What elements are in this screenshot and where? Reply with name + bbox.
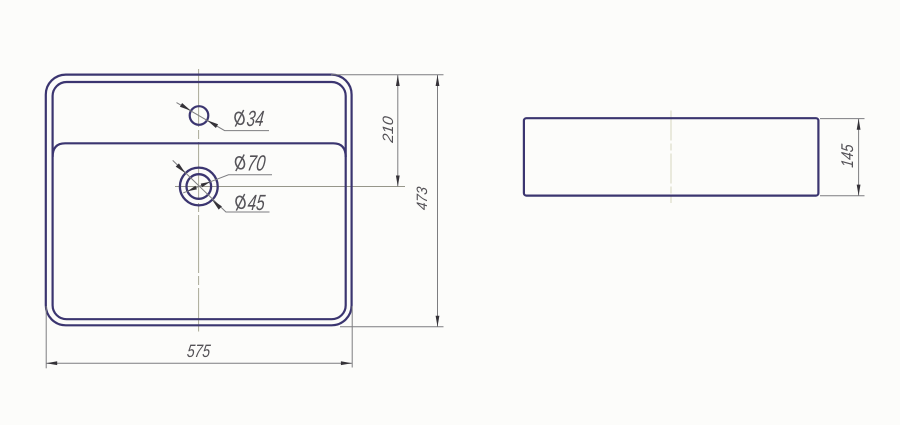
svg-text:145: 145: [838, 143, 857, 169]
svg-text:210: 210: [380, 115, 397, 145]
svg-text:34: 34: [245, 106, 265, 131]
svg-text:473: 473: [414, 185, 431, 211]
svg-text:70: 70: [246, 150, 268, 175]
svg-text:575: 575: [186, 341, 212, 361]
